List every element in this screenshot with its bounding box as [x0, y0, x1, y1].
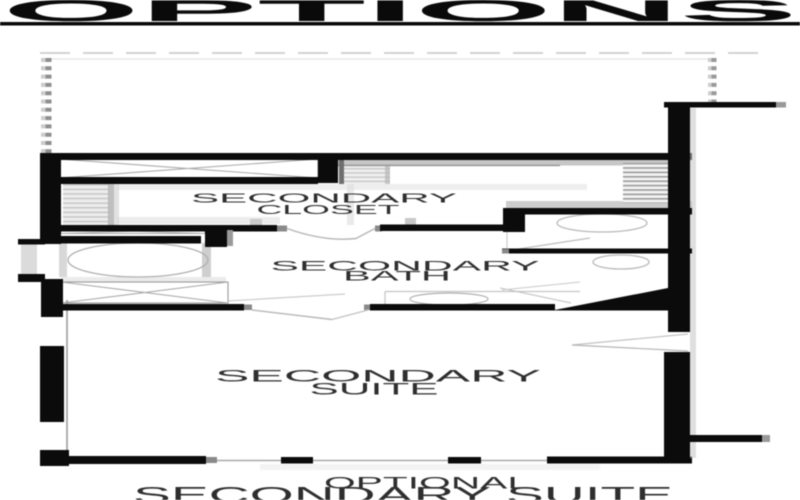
svg-text:CLOSET: CLOSET	[257, 202, 400, 217]
svg-text:BATH: BATH	[343, 268, 451, 284]
svg-text:SECONDARY SUITE: SECONDARY SUITE	[133, 483, 673, 500]
svg-text:SUITE: SUITE	[310, 380, 439, 399]
